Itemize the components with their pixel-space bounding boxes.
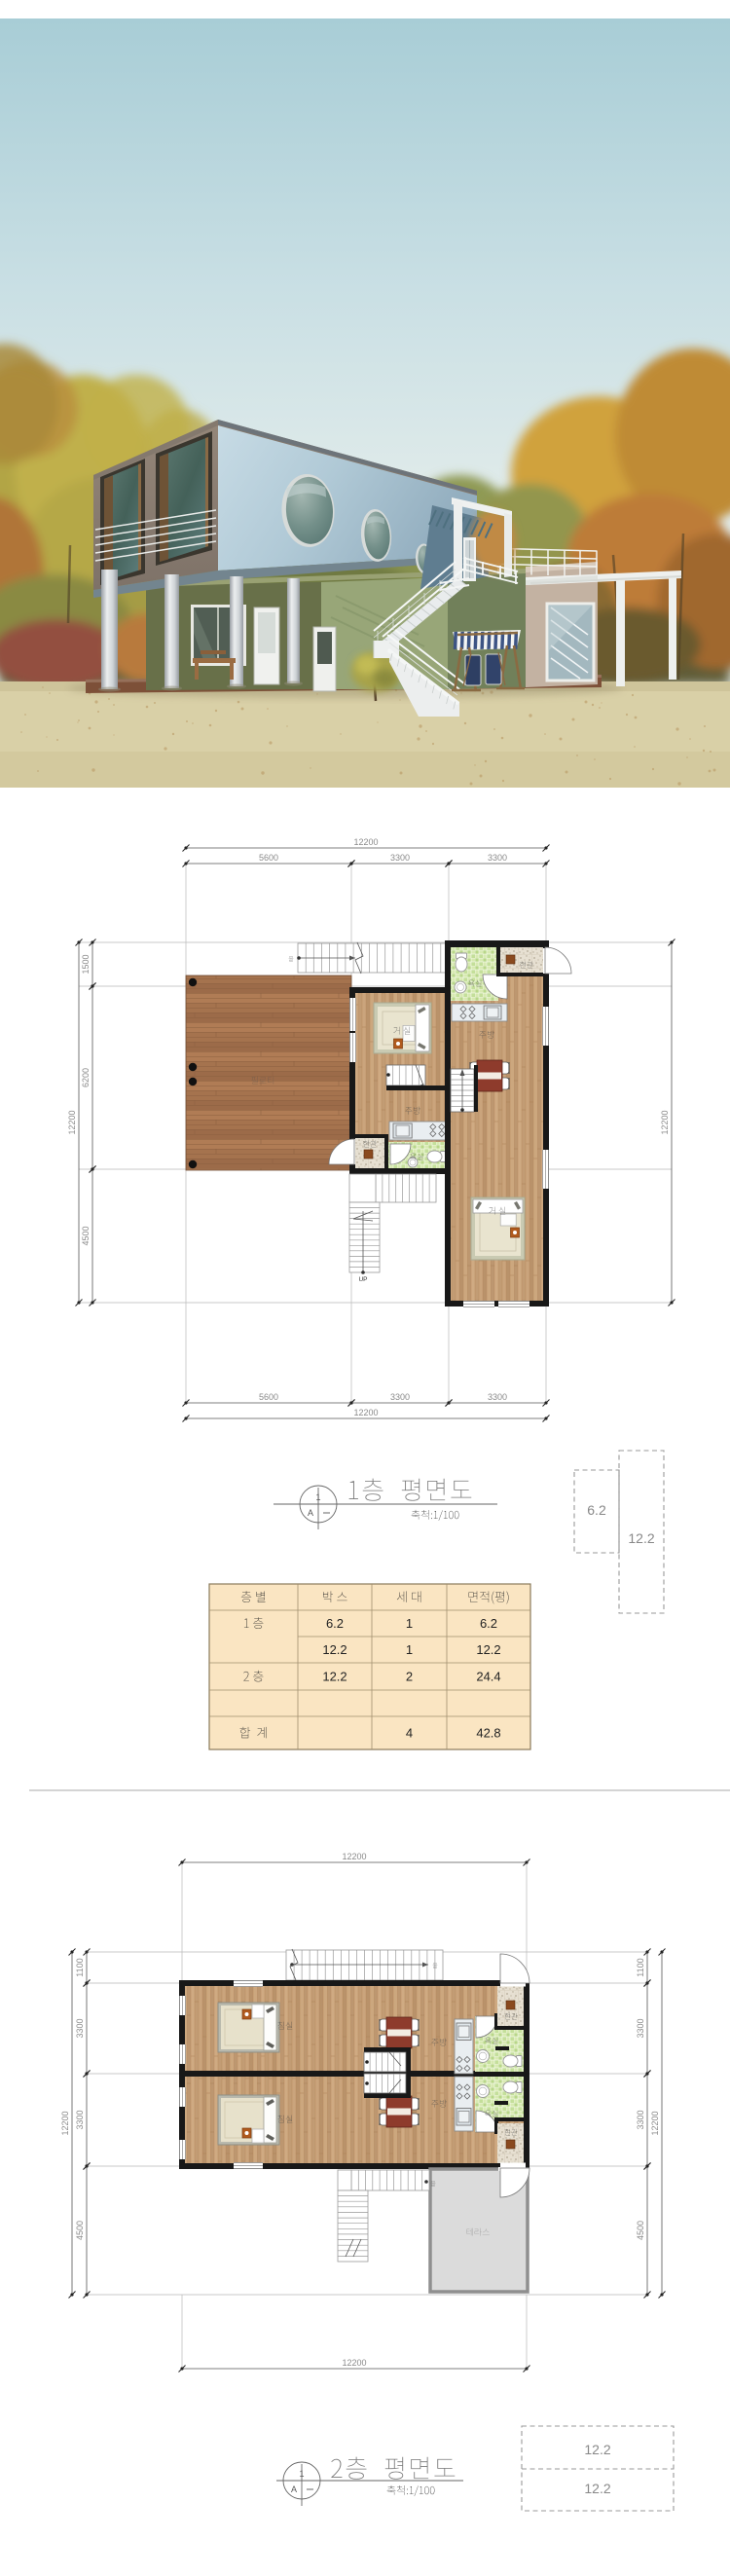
svg-text:3300: 3300 [390, 1392, 410, 1402]
svg-text:12.2: 12.2 [476, 1642, 500, 1657]
svg-text:3300: 3300 [390, 853, 410, 863]
svg-text:1: 1 [315, 1492, 320, 1502]
svg-text:1: 1 [406, 1642, 413, 1657]
svg-text:12200: 12200 [342, 1852, 366, 1861]
svg-text:24.4: 24.4 [476, 1670, 500, 1684]
svg-text:6.2: 6.2 [326, 1616, 344, 1631]
svg-text:UP: UP [358, 1276, 367, 1283]
svg-text:5600: 5600 [259, 853, 278, 863]
svg-text:1100: 1100 [75, 1958, 85, 1976]
svg-text:12200: 12200 [342, 2358, 366, 2368]
svg-text:4500: 4500 [81, 1226, 91, 1245]
svg-text:12.2: 12.2 [584, 2481, 610, 2496]
svg-text:3300: 3300 [488, 853, 507, 863]
svg-text:12200: 12200 [660, 1110, 670, 1134]
svg-text:5600: 5600 [259, 1392, 278, 1402]
svg-text:4500: 4500 [75, 2221, 85, 2240]
svg-text:A: A [308, 1508, 313, 1518]
svg-text:12200: 12200 [60, 2111, 70, 2135]
svg-text:3300: 3300 [75, 2018, 85, 2038]
svg-text:3300: 3300 [636, 2018, 645, 2038]
svg-text:2: 2 [406, 1670, 413, 1684]
svg-text:1100: 1100 [636, 1958, 645, 1976]
svg-text:12200: 12200 [353, 837, 378, 847]
svg-text:12.2: 12.2 [628, 1530, 654, 1546]
svg-text:12200: 12200 [650, 2111, 660, 2135]
svg-text:6.2: 6.2 [587, 1502, 606, 1518]
svg-text:6.2: 6.2 [480, 1616, 497, 1631]
svg-text:1: 1 [299, 2469, 304, 2479]
svg-text:42.8: 42.8 [476, 1726, 500, 1741]
svg-text:1: 1 [406, 1616, 413, 1631]
svg-text:4500: 4500 [636, 2221, 645, 2240]
svg-text:12.2: 12.2 [322, 1642, 347, 1657]
svg-text:1500: 1500 [81, 954, 91, 974]
svg-text:6200: 6200 [81, 1068, 91, 1087]
svg-text:12.2: 12.2 [584, 2442, 610, 2457]
svg-text:3300: 3300 [488, 1392, 507, 1402]
svg-text:3300: 3300 [636, 2110, 645, 2129]
svg-text:12200: 12200 [67, 1110, 77, 1134]
svg-text:12.2: 12.2 [322, 1670, 347, 1684]
svg-text:A: A [291, 2484, 297, 2494]
svg-text:12200: 12200 [353, 1408, 378, 1417]
svg-text:3300: 3300 [75, 2110, 85, 2129]
svg-text:4: 4 [406, 1726, 413, 1741]
